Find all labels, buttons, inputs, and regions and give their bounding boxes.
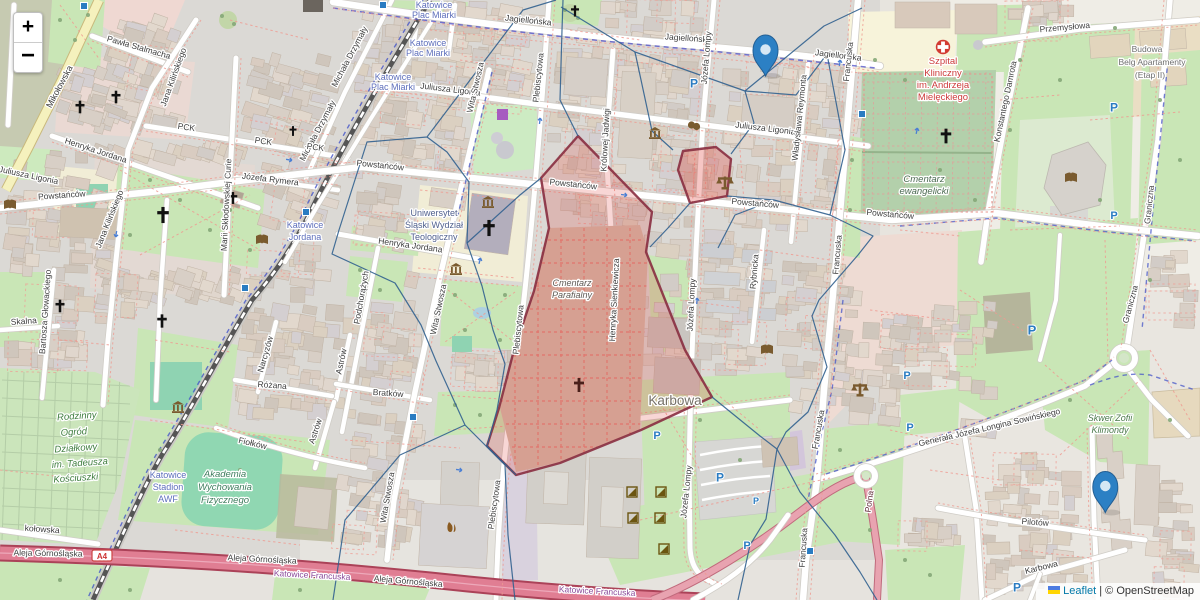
svg-text:Uniwersytet: Uniwersytet xyxy=(410,208,458,218)
svg-text:Stadion: Stadion xyxy=(153,482,184,492)
svg-text:Śląski Wydział: Śląski Wydział xyxy=(405,219,463,230)
svg-text:P: P xyxy=(906,422,913,434)
svg-text:Teologiczny: Teologiczny xyxy=(410,232,458,242)
svg-text:ewangelicki: ewangelicki xyxy=(899,186,949,197)
svg-text:P: P xyxy=(653,430,660,442)
svg-text:Katowice: Katowice xyxy=(375,72,412,82)
svg-text:Belg Apartamenty: Belg Apartamenty xyxy=(1118,57,1186,67)
svg-text:Jordana: Jordana xyxy=(289,232,322,242)
svg-text:Skalna: Skalna xyxy=(10,315,37,327)
svg-text:P: P xyxy=(690,76,698,90)
svg-text:Ogród: Ogród xyxy=(60,426,88,439)
svg-text:Fizycznego: Fizycznego xyxy=(201,495,249,506)
svg-text:Pilotów: Pilotów xyxy=(1021,516,1050,528)
svg-text:(Etap II): (Etap II) xyxy=(1135,70,1165,80)
svg-text:P: P xyxy=(1110,210,1117,222)
svg-text:Cmentarz: Cmentarz xyxy=(552,278,592,288)
svg-text:Klimondy: Klimondy xyxy=(1091,425,1129,435)
svg-text:Akademia: Akademia xyxy=(203,469,246,480)
svg-text:im. Andrzeja: im. Andrzeja xyxy=(917,80,970,91)
svg-text:P: P xyxy=(753,496,759,506)
svg-text:Katowice: Katowice xyxy=(150,470,187,480)
svg-text:Plac Miarki: Plac Miarki xyxy=(412,10,456,20)
svg-text:Skwer Zofii: Skwer Zofii xyxy=(1088,413,1134,423)
svg-text:P: P xyxy=(716,470,724,484)
svg-text:Różana: Różana xyxy=(257,379,287,391)
svg-text:A4: A4 xyxy=(97,552,108,561)
svg-text:Plac Miarki: Plac Miarki xyxy=(406,48,450,58)
svg-text:P: P xyxy=(903,370,910,382)
svg-text:P: P xyxy=(1013,580,1021,594)
svg-text:Wychowania: Wychowania xyxy=(198,482,252,493)
svg-text:Budowa: Budowa xyxy=(1132,44,1163,54)
svg-text:Katowice: Katowice xyxy=(287,220,324,230)
svg-text:AWF: AWF xyxy=(158,494,178,504)
svg-text:P: P xyxy=(1028,323,1037,338)
svg-text:P: P xyxy=(743,540,750,552)
svg-text:Cmentarz: Cmentarz xyxy=(903,174,944,185)
svg-text:Parafialny: Parafialny xyxy=(552,290,593,300)
svg-text:Katowice: Katowice xyxy=(410,38,447,48)
svg-text:Szpital: Szpital xyxy=(929,56,958,67)
svg-text:Plac Miarki: Plac Miarki xyxy=(371,82,415,92)
svg-text:Katowice: Katowice xyxy=(416,0,453,10)
svg-text:Karbowa: Karbowa xyxy=(648,393,702,408)
svg-text:Aleja Górnośląska: Aleja Górnośląska xyxy=(13,547,82,558)
svg-text:Mielęckiego: Mielęckiego xyxy=(918,92,968,103)
svg-text:Kliniczny: Kliniczny xyxy=(924,68,962,79)
svg-text:P: P xyxy=(1110,100,1118,114)
